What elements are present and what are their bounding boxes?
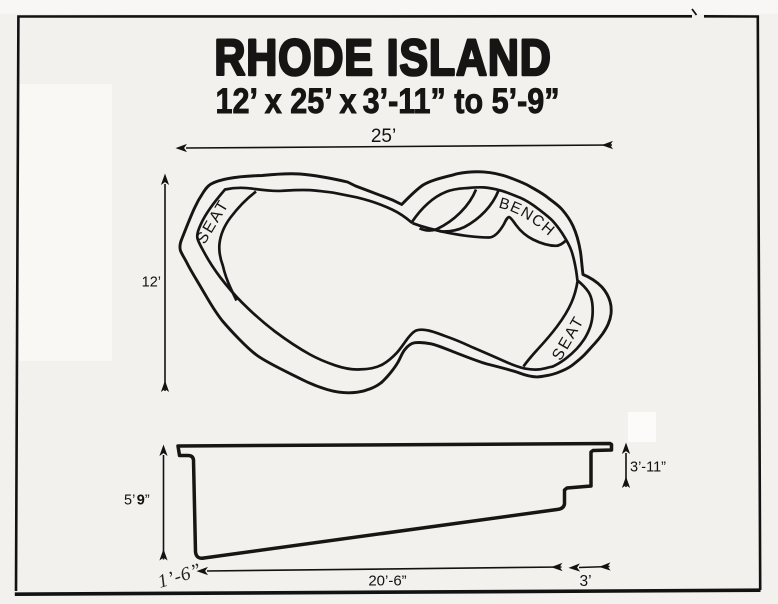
svg-text:20’-6”: 20’-6” bbox=[368, 572, 406, 589]
svg-text:25’: 25’ bbox=[371, 126, 396, 147]
svg-text:RHODE ISLAND: RHODE ISLAND bbox=[214, 29, 551, 86]
svg-text:12’: 12’ bbox=[142, 275, 161, 291]
svg-text:12’ x 25’ x 3’-11” to 5’-9”: 12’ x 25’ x 3’-11” to 5’-9” bbox=[215, 81, 559, 120]
svg-text:3’-11”: 3’-11” bbox=[630, 460, 666, 476]
svg-text:3’: 3’ bbox=[579, 573, 591, 590]
svg-text:5’9”: 5’9” bbox=[124, 493, 150, 509]
